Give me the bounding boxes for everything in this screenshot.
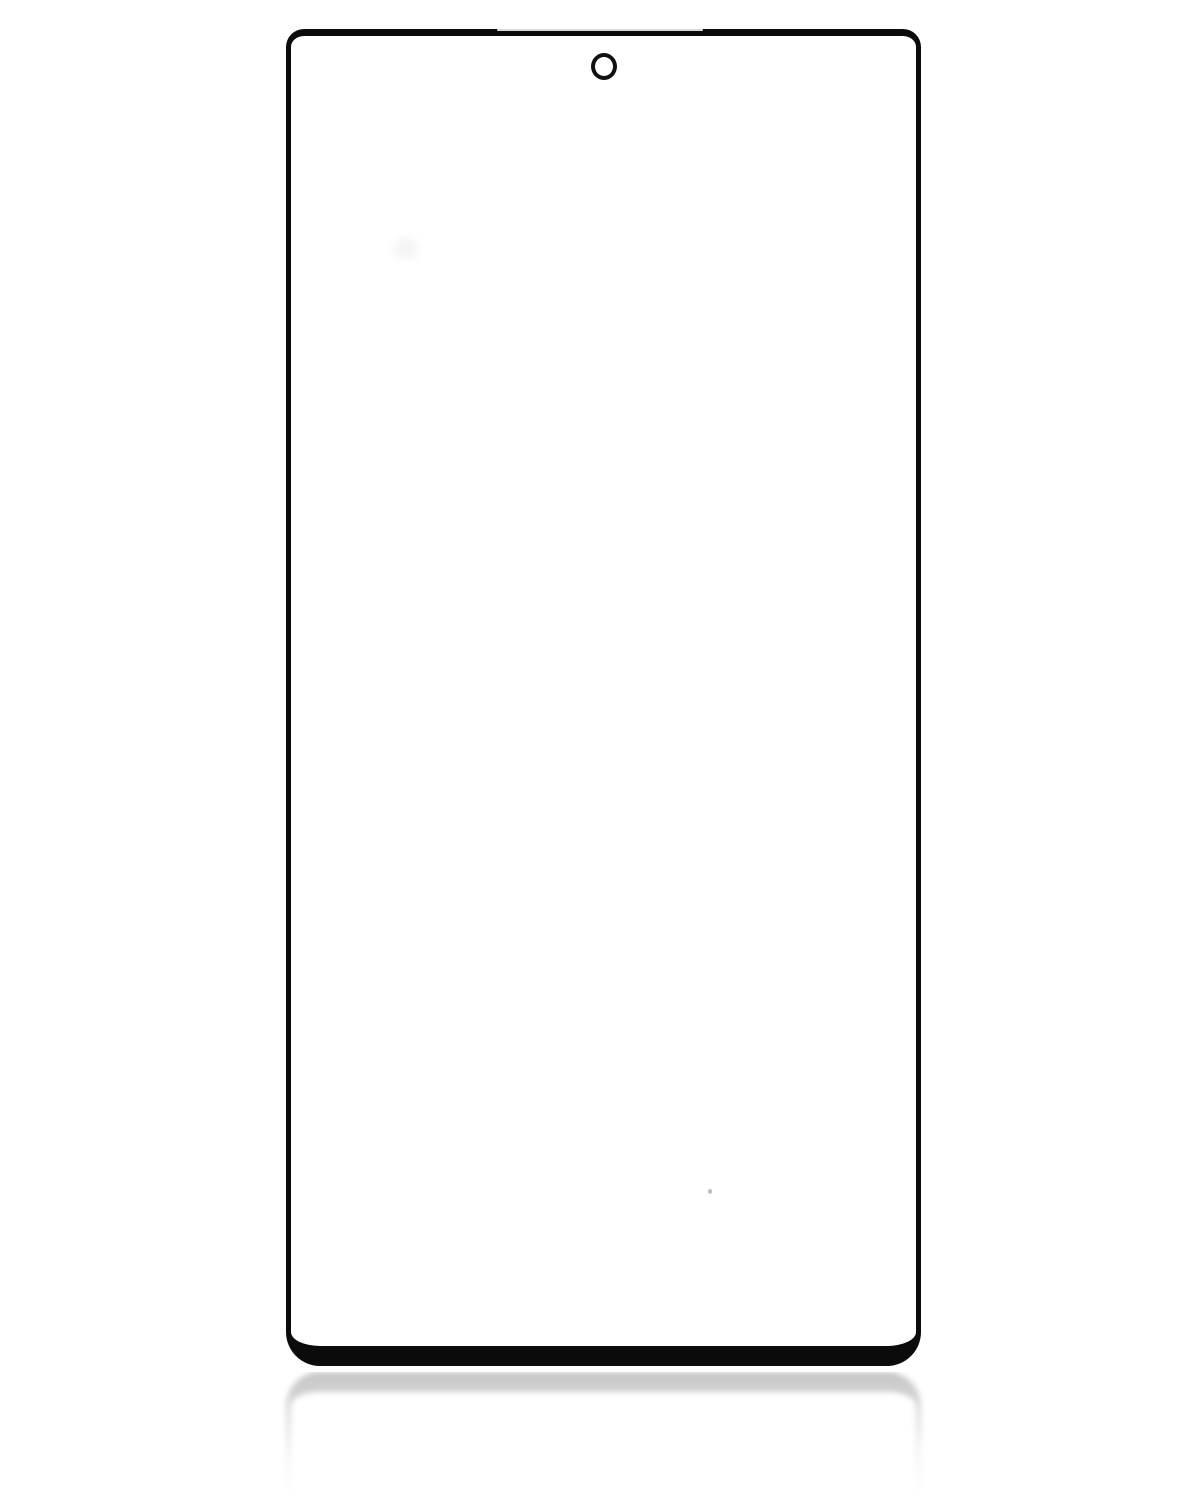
dust-speck — [708, 1189, 712, 1194]
punch-hole-camera-cutout — [591, 53, 617, 80]
smudge-mark — [394, 238, 418, 259]
top-edge-highlight — [497, 29, 703, 31]
reflection-fade-overlay — [280, 1372, 927, 1499]
product-photo — [0, 0, 1200, 1500]
reflection-glass-shape — [286, 1372, 921, 1499]
phone-front-glass-panel — [286, 29, 921, 1366]
floor-reflection — [280, 1372, 927, 1499]
